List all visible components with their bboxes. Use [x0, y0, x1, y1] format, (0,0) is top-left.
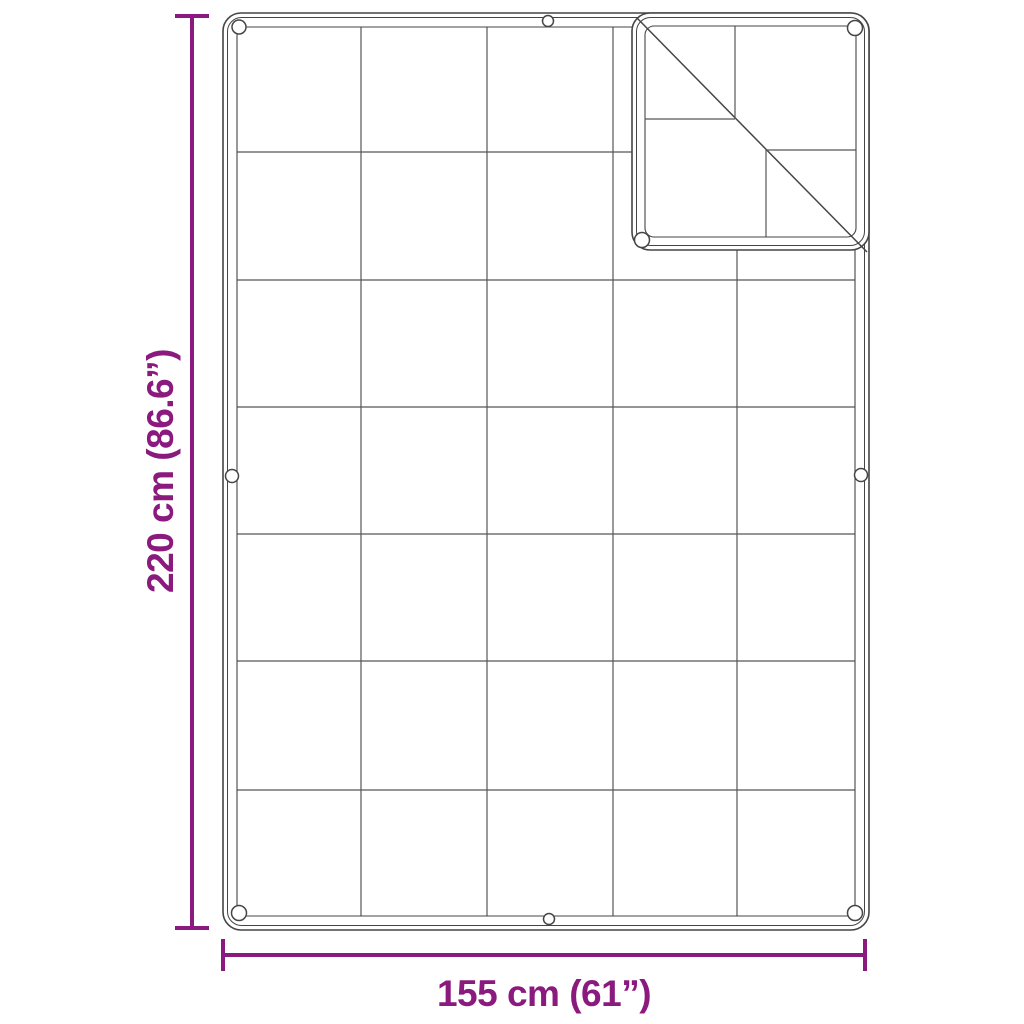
grommet — [848, 21, 863, 36]
product-dimension-diagram: 220 cm (86.6”) 155 cm (61”) — [0, 0, 1024, 1024]
grommet — [232, 906, 247, 921]
diagram-canvas: 220 cm (86.6”) 155 cm (61”) — [0, 0, 1024, 1024]
grommet — [855, 469, 868, 482]
folded-corner-flap — [632, 13, 869, 252]
grommet — [232, 20, 246, 34]
width-dimension — [223, 939, 865, 971]
grommet — [226, 470, 239, 483]
grommet — [635, 233, 650, 248]
grommet — [544, 914, 555, 925]
height-label: 220 cm (86.6”) — [140, 349, 181, 593]
grommet — [543, 16, 554, 27]
width-label: 155 cm (61”) — [437, 973, 651, 1014]
grommet — [848, 906, 863, 921]
